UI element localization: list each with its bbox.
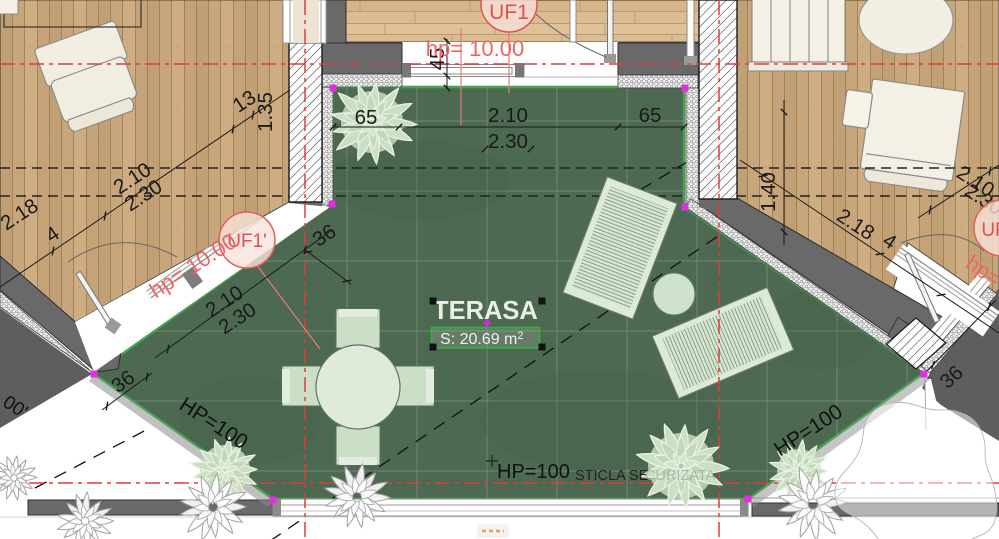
- svg-text:CURIZATA: CURIZATA: [645, 468, 716, 484]
- svg-text:1.40: 1.40: [757, 172, 780, 212]
- svg-text:65: 65: [355, 106, 378, 129]
- svg-text:S: 20.69 m2: S: 20.69 m2: [440, 330, 524, 348]
- svg-text:2.10: 2.10: [488, 104, 528, 127]
- svg-text:65: 65: [639, 104, 662, 127]
- svg-text:hp= 10.00: hp= 10.00: [426, 36, 524, 61]
- svg-text:1.35: 1.35: [254, 92, 277, 132]
- svg-text:UF1: UF1: [489, 1, 529, 24]
- svg-text:STICLA SE: STICLA SE: [575, 468, 649, 484]
- svg-text:HP=100: HP=100: [497, 461, 570, 483]
- svg-text:UF: UF: [981, 220, 999, 241]
- svg-text:2.30: 2.30: [488, 130, 528, 153]
